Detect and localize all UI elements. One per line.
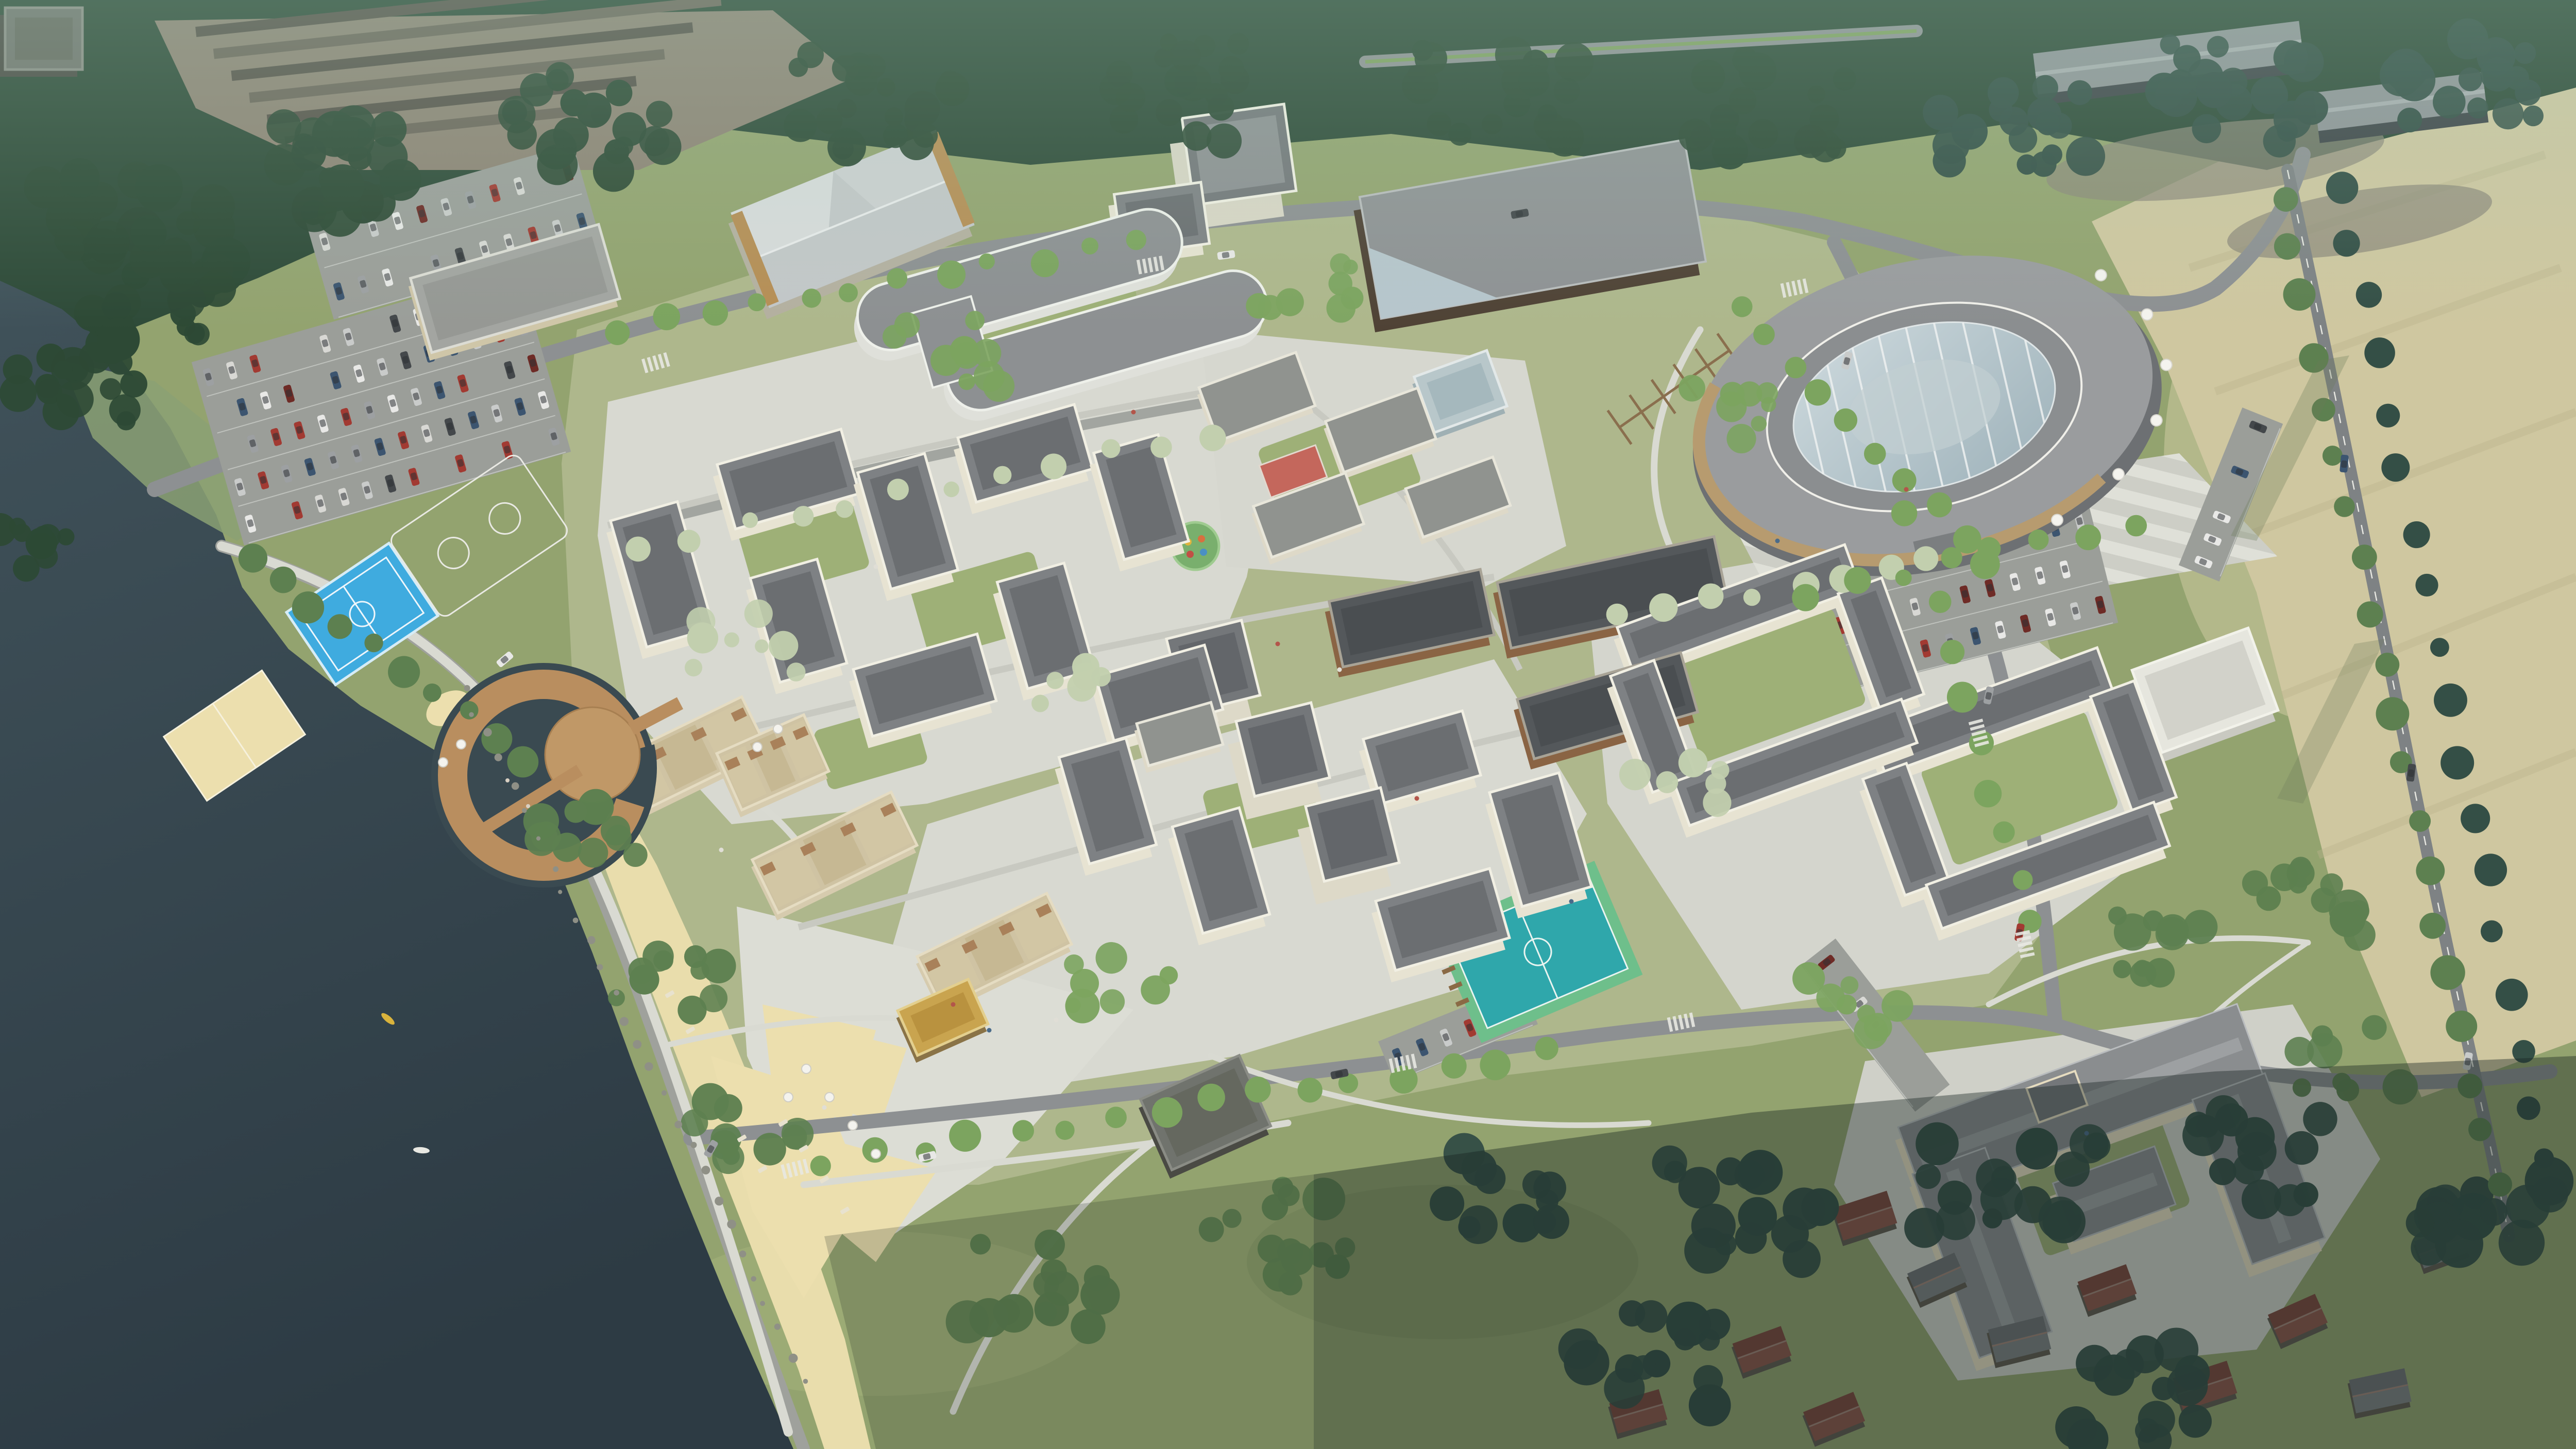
street-tree	[507, 746, 538, 778]
tree	[974, 361, 1005, 392]
shore-rock	[803, 1379, 808, 1384]
street-tree	[2441, 746, 2474, 779]
shore-rock	[633, 1040, 641, 1049]
street-tree	[2376, 404, 2400, 428]
street-tree	[2434, 684, 2467, 717]
street-tree	[481, 723, 512, 754]
street-tree	[2475, 854, 2507, 886]
street-tree	[423, 684, 442, 702]
shore-rock	[464, 685, 470, 691]
street-tree	[1698, 584, 1724, 609]
street-tree	[887, 479, 909, 500]
street-tree	[2415, 574, 2438, 596]
aerial-masterplan-render	[0, 0, 2576, 1449]
street-tree	[2409, 810, 2431, 832]
street-tree	[1927, 492, 1952, 518]
beach-umbrella	[753, 742, 762, 752]
atmospheric-haze	[0, 0, 2576, 330]
street-tree	[2430, 955, 2465, 990]
shore-rock	[662, 1090, 667, 1096]
street-tree	[2381, 453, 2410, 482]
tree	[1882, 990, 1913, 1022]
tree	[1619, 759, 1651, 790]
beach-umbrella	[438, 758, 448, 767]
tree	[950, 336, 978, 364]
person	[1054, 1018, 1059, 1022]
tree	[100, 378, 122, 400]
street-tree	[2419, 913, 2446, 939]
street-tree	[2352, 544, 2377, 570]
tree	[1656, 771, 1678, 793]
street-tree	[993, 466, 1011, 484]
shore-rock	[558, 890, 562, 894]
street-tree	[810, 1155, 831, 1176]
car-roof	[2408, 769, 2415, 777]
play-equipment	[1187, 551, 1194, 558]
street-tree	[2075, 524, 2101, 550]
shore-rock	[614, 990, 619, 996]
tree	[523, 803, 559, 839]
street-tree	[1864, 443, 1886, 465]
beach-umbrella	[784, 1093, 793, 1102]
street-tree	[1298, 1078, 1323, 1102]
street-tree	[1041, 453, 1066, 479]
tree	[685, 659, 702, 676]
tree	[1857, 1005, 1875, 1023]
street-tree	[2403, 521, 2430, 548]
tree	[1031, 695, 1049, 712]
tree	[687, 622, 718, 653]
shore-rock	[536, 837, 540, 841]
tree	[2183, 910, 2218, 944]
tree	[2312, 1025, 2333, 1046]
tree	[1096, 942, 1127, 974]
shore-rock	[469, 712, 474, 717]
street-tree	[793, 506, 814, 526]
tree	[1726, 424, 1756, 453]
tree	[1046, 672, 1064, 689]
street-tree	[328, 614, 352, 639]
tree	[722, 1148, 740, 1165]
street-tree	[836, 500, 853, 518]
person	[987, 1028, 992, 1033]
shore-rock	[495, 754, 502, 761]
car	[2340, 454, 2349, 472]
tree	[13, 524, 31, 542]
street-tree	[2481, 920, 2503, 943]
street-tree	[1941, 547, 1962, 568]
shore-rock	[512, 782, 519, 790]
shore-rock	[760, 1301, 765, 1306]
shore-rock	[774, 1323, 781, 1329]
person	[1337, 668, 1342, 672]
street-tree	[1947, 681, 1978, 712]
shore-rock	[739, 1251, 746, 1257]
person	[719, 848, 724, 853]
tree	[653, 950, 673, 970]
tree	[1679, 375, 1705, 402]
tree	[1751, 416, 1767, 432]
tree	[629, 958, 655, 984]
shore-rock	[645, 1062, 653, 1071]
street-tree	[1101, 439, 1121, 458]
shore-rock	[715, 1197, 723, 1205]
person	[874, 565, 878, 569]
play-equipment	[1198, 535, 1205, 542]
shore-rock	[690, 1142, 697, 1148]
tree	[684, 945, 707, 968]
beach-umbrella	[456, 740, 466, 749]
person	[951, 1002, 956, 1007]
tree	[1761, 397, 1776, 412]
street-tree	[1480, 1050, 1511, 1081]
street-tree	[2334, 496, 2355, 517]
tree	[2113, 960, 2131, 978]
shore-rock	[751, 1276, 756, 1282]
tree	[578, 838, 608, 867]
street-tree	[1197, 1084, 1225, 1112]
tree	[3, 354, 33, 384]
tree	[744, 600, 773, 628]
street-tree	[1929, 591, 1952, 613]
tree	[1679, 748, 1708, 777]
tree	[2270, 863, 2298, 891]
tree	[755, 639, 768, 653]
street-tree	[270, 567, 297, 593]
tree	[958, 373, 975, 390]
tree	[54, 360, 72, 379]
street-tree	[1940, 640, 1964, 664]
tree	[29, 533, 54, 558]
street-tree	[2323, 446, 2343, 466]
shore-rock	[620, 1017, 629, 1026]
street-tree	[2376, 697, 2409, 730]
street-tree	[1649, 593, 1677, 622]
tree	[769, 631, 798, 660]
shore-rock	[587, 936, 596, 944]
street-tree	[364, 634, 383, 652]
person	[1276, 642, 1280, 646]
street-tree	[1913, 546, 1938, 571]
tree	[724, 633, 739, 647]
tree	[677, 996, 706, 1025]
tree	[2145, 958, 2175, 988]
street-tree	[1105, 1106, 1127, 1128]
street-tree	[2013, 870, 2033, 890]
shore-rock	[483, 728, 492, 736]
street-tree	[2376, 653, 2400, 677]
tree	[623, 843, 648, 867]
scene-root	[0, 0, 2576, 1449]
tree	[120, 370, 147, 398]
person	[1131, 410, 1136, 415]
street-tree	[2028, 530, 2049, 550]
person	[822, 1105, 827, 1110]
street-tree	[2357, 601, 2383, 627]
street-tree	[1891, 500, 1917, 526]
street-tree	[742, 513, 758, 528]
person	[1775, 539, 1780, 543]
street-tree	[1152, 1097, 1182, 1128]
beach-umbrella	[773, 724, 783, 734]
tree	[2108, 907, 2127, 925]
street-tree	[949, 1120, 981, 1152]
street-tree	[460, 701, 479, 720]
tree	[1091, 667, 1111, 687]
street-tree	[1199, 424, 1226, 451]
street-tree	[1606, 604, 1628, 625]
street-tree	[2461, 804, 2490, 833]
shore-rock	[597, 964, 603, 970]
street-tree	[2496, 979, 2528, 1011]
street-tree	[944, 482, 959, 497]
shore-rock	[573, 917, 579, 923]
street-tree	[1743, 589, 1760, 606]
tree	[552, 832, 582, 862]
beach-umbrella	[848, 1121, 857, 1130]
tree	[782, 1124, 807, 1149]
street-tree	[1977, 537, 2001, 560]
tree	[13, 555, 40, 582]
tree	[787, 662, 806, 681]
street-tree	[2364, 337, 2395, 368]
tree	[2362, 1015, 2386, 1040]
street-tree	[1895, 570, 1912, 586]
tree	[565, 800, 587, 823]
street-tree	[1805, 379, 1831, 405]
tree	[692, 1083, 729, 1120]
shore-rock	[727, 1220, 736, 1229]
tree	[57, 381, 94, 418]
shore-rock	[522, 808, 527, 813]
tree	[1792, 962, 1825, 995]
street-tree	[1012, 1120, 1034, 1141]
shore-rock	[674, 1121, 682, 1129]
tree	[2242, 871, 2268, 896]
street-tree	[239, 543, 267, 572]
beach-umbrella	[825, 1093, 834, 1102]
street-tree	[292, 591, 324, 623]
street-tree	[1785, 357, 1806, 379]
tree	[1070, 969, 1099, 998]
person	[1415, 796, 1419, 801]
play-equipment	[1200, 549, 1207, 556]
street-tree	[2125, 515, 2147, 537]
shore-rock	[553, 866, 558, 872]
street-tree	[1535, 1037, 1558, 1060]
street-tree	[2446, 1011, 2477, 1042]
tree	[1705, 773, 1726, 794]
street-tree	[1245, 1077, 1271, 1103]
street-tree	[625, 537, 651, 562]
street-tree	[1974, 780, 2002, 808]
street-tree	[1834, 408, 1857, 432]
street-tree	[1442, 1053, 1467, 1079]
street-tree	[677, 530, 701, 553]
tree	[1716, 391, 1747, 422]
street-tree	[1792, 584, 1819, 611]
street-tree	[1150, 436, 1172, 458]
shore-rock	[702, 1166, 710, 1174]
shore-rock	[789, 1354, 798, 1363]
tree	[753, 1133, 786, 1165]
beach-umbrella	[871, 1149, 880, 1158]
person	[1904, 487, 1909, 492]
tree	[1141, 975, 1170, 1004]
beach-umbrella	[802, 1064, 811, 1073]
street-tree	[2416, 857, 2445, 885]
tree	[2284, 1037, 2314, 1066]
car-roof	[2341, 461, 2347, 468]
tree	[2329, 890, 2369, 930]
street-tree	[1844, 567, 1871, 594]
street-tree	[388, 656, 420, 688]
tree	[1065, 998, 1081, 1013]
person	[1569, 899, 1574, 904]
tree	[1100, 989, 1125, 1014]
swimmer	[505, 778, 510, 782]
street-tree	[1055, 1121, 1074, 1140]
street-tree	[2430, 638, 2449, 657]
street-tree	[1993, 822, 2015, 843]
